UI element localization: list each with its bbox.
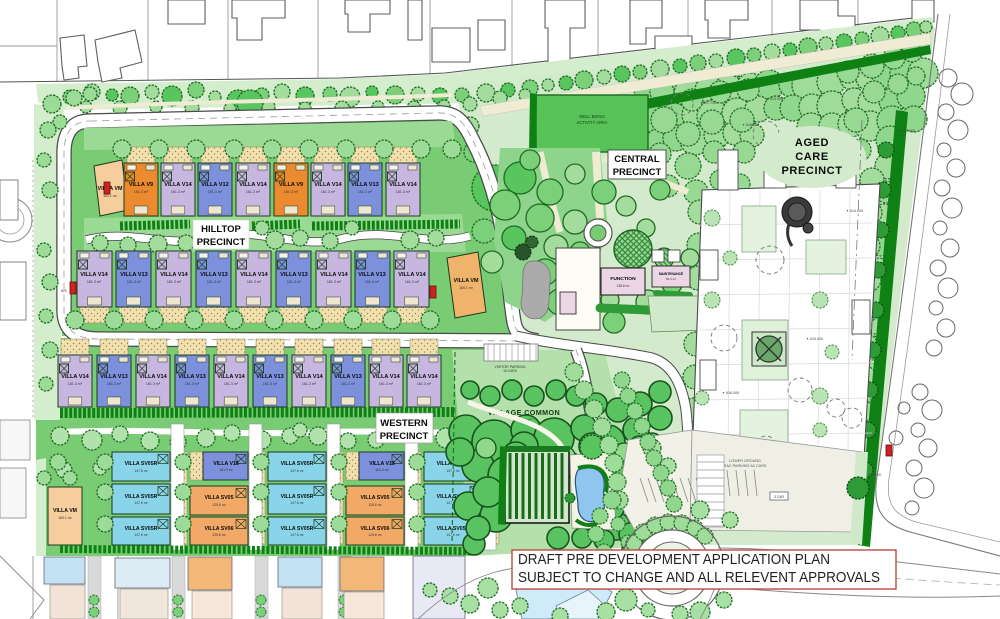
svg-text:VILLA V14: VILLA V14 — [389, 182, 417, 188]
svg-text:✦ 616.000: ✦ 616.000 — [742, 123, 759, 127]
svg-text:138.8 m²: 138.8 m² — [616, 284, 630, 288]
svg-text:VILLA V14: VILLA V14 — [372, 374, 400, 380]
svg-text:VILLA V13: VILLA V13 — [200, 272, 227, 278]
svg-text:125.6 m²: 125.6 m² — [368, 533, 382, 537]
svg-text:CENTRAL: CENTRAL — [614, 154, 660, 165]
svg-text:161.3 m²: 161.3 m² — [396, 190, 411, 194]
svg-text:161.3 m²: 161.3 m² — [224, 382, 239, 386]
svg-text:161.3 m²: 161.3 m² — [284, 190, 299, 194]
svg-text:VILLA SV05R: VILLA SV05R — [437, 526, 470, 532]
svg-text:VILLA SV05R: VILLA SV05R — [125, 526, 158, 532]
svg-text:125.6 m²: 125.6 m² — [212, 533, 226, 537]
svg-text:DRAFT PRE DEVELOPMENT APPLICAT: DRAFT PRE DEVELOPMENT APPLICATION PLAN — [518, 551, 830, 568]
svg-text:3 CAR: 3 CAR — [774, 495, 785, 499]
svg-text:161.3 m²: 161.3 m² — [327, 280, 342, 284]
svg-text:VILLA V14: VILLA V14 — [320, 272, 348, 278]
svg-text:WESTERN: WESTERN — [380, 418, 428, 429]
svg-text:161.3 m²: 161.3 m² — [321, 190, 336, 194]
svg-text:125.6 m²: 125.6 m² — [212, 503, 226, 507]
svg-text:161.3 m²: 161.3 m² — [171, 190, 186, 194]
svg-text:VILLA SV05R: VILLA SV05R — [281, 461, 314, 467]
svg-text:✦ 614.000: ✦ 614.000 — [766, 97, 783, 101]
svg-text:160.1 m²: 160.1 m² — [58, 516, 72, 520]
svg-text:VILLA SV05: VILLA SV05 — [205, 495, 234, 501]
svg-text:CARE: CARE — [795, 151, 829, 163]
svg-text:161.3 m²: 161.3 m² — [379, 382, 394, 386]
svg-text:✦ 615.000: ✦ 615.000 — [806, 337, 823, 341]
svg-text:VILLA SV06: VILLA SV06 — [361, 526, 390, 532]
svg-text:161.3 m²: 161.3 m² — [185, 382, 200, 386]
svg-text:161.3 m²: 161.3 m² — [107, 382, 122, 386]
svg-text:161.3 m²: 161.3 m² — [263, 382, 278, 386]
svg-text:VILLA V13: VILLA V13 — [256, 374, 283, 380]
svg-text:✦ 616.000: ✦ 616.000 — [722, 391, 739, 395]
svg-text:VILLA V9: VILLA V9 — [279, 182, 303, 188]
svg-text:VILLA V13: VILLA V13 — [334, 374, 361, 380]
svg-text:VILLA V14: VILLA V14 — [217, 374, 245, 380]
svg-text:VILLA SV06: VILLA SV06 — [205, 526, 234, 532]
svg-text:VILLA V14: VILLA V14 — [139, 374, 167, 380]
svg-text:LOWER GROUND: LOWER GROUND — [729, 459, 761, 463]
svg-text:125.6 m²: 125.6 m² — [368, 503, 382, 507]
svg-text:VILLA V14: VILLA V14 — [80, 272, 108, 278]
svg-text:147.6 m²: 147.6 m² — [290, 501, 304, 505]
svg-text:VILLA V14: VILLA V14 — [61, 374, 89, 380]
svg-text:HILLTOP: HILLTOP — [201, 224, 241, 235]
svg-text:ACTIVITY AREA: ACTIVITY AREA — [576, 120, 607, 125]
svg-text:160.1 m²: 160.1 m² — [103, 194, 118, 198]
svg-text:VILLA V14: VILLA V14 — [160, 272, 188, 278]
svg-text:FUNCTION: FUNCTION — [610, 276, 636, 282]
svg-text:16 CARS: 16 CARS — [503, 369, 518, 373]
svg-text:VILLA V14: VILLA V14 — [295, 374, 323, 380]
svg-text:PRECINCT: PRECINCT — [613, 167, 662, 178]
svg-text:161.3 m²: 161.3 m² — [134, 190, 149, 194]
svg-text:147.6 m²: 147.6 m² — [446, 533, 460, 537]
svg-text:VILLA V13: VILLA V13 — [280, 272, 307, 278]
svg-text:PRECINCT: PRECINCT — [197, 237, 246, 248]
svg-text:161.3 m²: 161.3 m² — [247, 280, 262, 284]
svg-text:VILLA V14: VILLA V14 — [240, 272, 268, 278]
svg-text:RAC PARKING 64 CARS: RAC PARKING 64 CARS — [724, 464, 767, 468]
svg-text:VILLA V13: VILLA V13 — [358, 272, 385, 278]
svg-text:VILLA VM: VILLA VM — [53, 508, 77, 514]
svg-text:VILLA V9: VILLA V9 — [129, 182, 153, 188]
svg-text:PRECINCT: PRECINCT — [380, 431, 429, 442]
svg-text:161.3 m²: 161.3 m² — [219, 468, 233, 472]
svg-text:VILLA V12: VILLA V12 — [201, 182, 228, 188]
svg-text:✦ 617.000: ✦ 617.000 — [700, 101, 717, 105]
svg-text:161.3 m²: 161.3 m² — [365, 280, 380, 284]
svg-text:147.6 m²: 147.6 m² — [134, 469, 148, 473]
svg-text:MAINTENANCE: MAINTENANCE — [659, 272, 684, 276]
svg-text:B/S: B/S — [61, 289, 67, 293]
svg-text:VILLA SV05R: VILLA SV05R — [281, 526, 314, 532]
svg-text:VILLA SV05R: VILLA SV05R — [281, 494, 314, 500]
svg-text:VILLA VM: VILLA VM — [454, 278, 479, 284]
svg-text:VILLA V14: VILLA V14 — [398, 272, 426, 278]
svg-text:161.3 m²: 161.3 m² — [146, 382, 161, 386]
svg-text:VILLA V14: VILLA V14 — [410, 374, 438, 380]
svg-text:VILLA V14: VILLA V14 — [239, 182, 267, 188]
svg-text:161.3 m²: 161.3 m² — [127, 280, 142, 284]
svg-text:161.3 m²: 161.3 m² — [417, 382, 432, 386]
svg-text:VILLA V13: VILLA V13 — [213, 461, 239, 467]
svg-text:VILLA SV05R: VILLA SV05R — [125, 461, 158, 467]
svg-text:VILLA V14: VILLA V14 — [164, 182, 192, 188]
svg-text:VILLA V13: VILLA V13 — [351, 182, 378, 188]
svg-text:161.3 m²: 161.3 m² — [341, 382, 356, 386]
svg-text:161.3 m²: 161.3 m² — [246, 190, 261, 194]
svg-text:VILLA V14: VILLA V14 — [314, 182, 342, 188]
svg-text:56.3 m²: 56.3 m² — [666, 277, 676, 281]
svg-text:161.3 m²: 161.3 m² — [375, 468, 389, 472]
svg-text:VILLA SV05: VILLA SV05 — [361, 495, 390, 501]
svg-text:161.3 m²: 161.3 m² — [207, 280, 222, 284]
svg-text:AGED: AGED — [795, 137, 829, 149]
svg-text:VILLA V13: VILLA V13 — [100, 374, 127, 380]
svg-text:VILLA V13: VILLA V13 — [178, 374, 205, 380]
svg-text:SUBJECT TO CHANGE AND ALL RELE: SUBJECT TO CHANGE AND ALL RELEVENT APPRO… — [518, 569, 880, 586]
svg-text:160.1 m²: 160.1 m² — [459, 286, 474, 290]
svg-text:VILLA V13: VILLA V13 — [120, 272, 147, 278]
svg-text:161.3 m²: 161.3 m² — [405, 280, 420, 284]
svg-text:147.6 m²: 147.6 m² — [134, 533, 148, 537]
svg-text:✦ 612.000: ✦ 612.000 — [898, 129, 915, 133]
svg-text:VILLA V13: VILLA V13 — [369, 461, 395, 467]
svg-text:161.3 m²: 161.3 m² — [358, 190, 373, 194]
svg-text:WELL BEING: WELL BEING — [579, 114, 604, 119]
svg-text:161.3 m²: 161.3 m² — [208, 190, 223, 194]
svg-text:PRECINCT: PRECINCT — [781, 165, 842, 177]
svg-text:161.3 m²: 161.3 m² — [302, 382, 317, 386]
svg-text:147.6 m²: 147.6 m² — [290, 469, 304, 473]
svg-text:161.3 m²: 161.3 m² — [68, 382, 83, 386]
svg-text:VILLA SV05R: VILLA SV05R — [125, 494, 158, 500]
svg-text:147.6 m²: 147.6 m² — [290, 533, 304, 537]
svg-text:✦ 614.000: ✦ 614.000 — [846, 209, 863, 213]
svg-text:147.6 m²: 147.6 m² — [134, 501, 148, 505]
svg-text:161.3 m²: 161.3 m² — [287, 280, 302, 284]
svg-text:161.3 m²: 161.3 m² — [167, 280, 182, 284]
svg-text:161.3 m²: 161.3 m² — [87, 280, 102, 284]
